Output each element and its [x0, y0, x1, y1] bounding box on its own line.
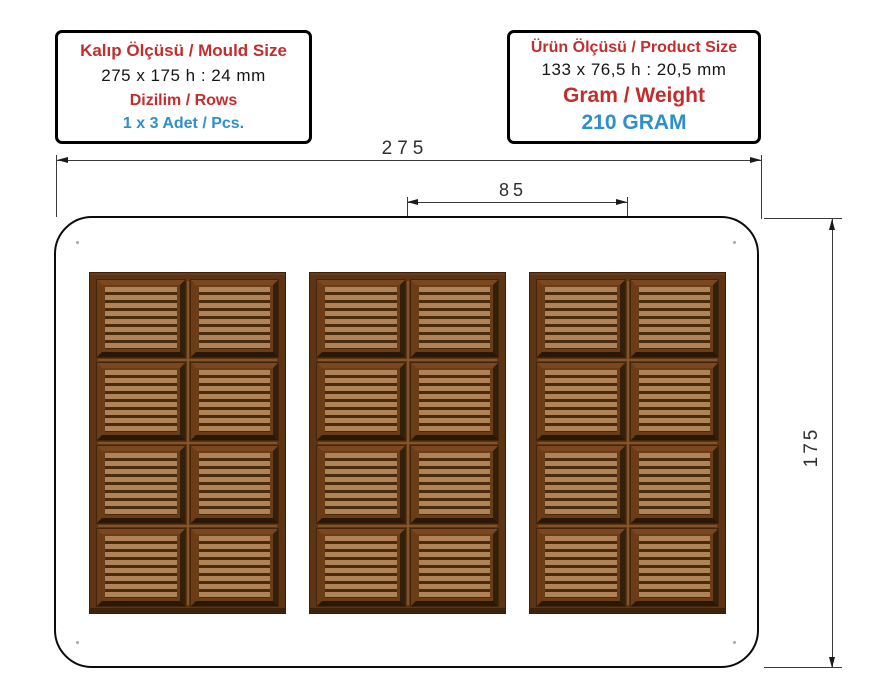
extension-line [764, 667, 842, 668]
product-info-box: Ürün Ölçüsü / Product Size 133 x 76,5 h … [507, 30, 761, 144]
dim-arrow-right-icon [750, 157, 761, 163]
dimension-height-label: 175 [790, 425, 834, 469]
chocolate-segment [631, 446, 719, 523]
rows-label: Dizilim / Rows [58, 92, 309, 110]
chocolate-segment [411, 280, 499, 357]
chocolate-segment [631, 363, 719, 440]
chocolate-segment [317, 529, 405, 606]
weight-label: Gram / Weight [510, 84, 758, 108]
chocolate-segment [317, 280, 405, 357]
extension-line [761, 155, 762, 219]
bar-divider-highlight [98, 359, 277, 361]
dim-arrow-left-icon [407, 199, 418, 205]
chocolate-bar [90, 273, 285, 613]
chocolate-segment [537, 446, 625, 523]
chocolate-segment [411, 446, 499, 523]
bar-divider-highlight [538, 525, 717, 527]
corner-mark [76, 641, 79, 644]
chocolate-segment [97, 363, 185, 440]
drawing-canvas: Kalıp Ölçüsü / Mould Size 275 x 175 h : … [0, 0, 881, 693]
dim-arrow-left-icon [57, 157, 68, 163]
corner-mark [733, 241, 736, 244]
chocolate-segment [411, 363, 499, 440]
chocolate-segment [191, 280, 279, 357]
chocolate-segment [411, 529, 499, 606]
dim-arrow-right-icon [616, 199, 627, 205]
bar-divider-highlight [318, 525, 497, 527]
mould-size-value: 275 x 175 h : 24 mm [58, 66, 309, 86]
rows-value: 1 x 3 Adet / Pcs. [58, 115, 309, 133]
corner-mark [733, 641, 736, 644]
chocolate-segment [537, 280, 625, 357]
chocolate-segment [631, 529, 719, 606]
chocolate-segment [191, 446, 279, 523]
bar-divider-highlight [538, 442, 717, 444]
mould-info-box: Kalıp Ölçüsü / Mould Size 275 x 175 h : … [55, 30, 312, 144]
dimension-height-line [832, 219, 833, 668]
dimension-pitch-label: 85 [472, 180, 554, 201]
chocolate-segment [317, 363, 405, 440]
chocolate-segment [317, 446, 405, 523]
chocolate-segment [97, 529, 185, 606]
chocolate-bar [310, 273, 505, 613]
chocolate-segment [537, 529, 625, 606]
mould-title: Kalıp Ölçüsü / Mould Size [58, 41, 309, 61]
chocolate-segment [191, 529, 279, 606]
dim-arrow-up-icon [829, 219, 835, 230]
weight-value: 210 GRAM [510, 111, 758, 135]
extension-line [764, 218, 842, 219]
extension-line [56, 155, 57, 217]
corner-mark [76, 241, 79, 244]
chocolate-segment [537, 363, 625, 440]
bar-divider-highlight [318, 359, 497, 361]
chocolate-segment [97, 446, 185, 523]
bar-divider-highlight [318, 442, 497, 444]
bar-divider-highlight [98, 442, 277, 444]
product-title: Ürün Ölçüsü / Product Size [510, 39, 758, 57]
dimension-pitch-line [407, 202, 627, 203]
bar-divider-highlight [538, 359, 717, 361]
dimension-width-line [57, 160, 761, 161]
bar-divider-highlight [98, 525, 277, 527]
chocolate-segment [191, 363, 279, 440]
dimension-width-label: 275 [355, 138, 455, 160]
chocolate-segment [97, 280, 185, 357]
chocolate-bar [530, 273, 725, 613]
product-size-value: 133 x 76,5 h : 20,5 mm [510, 60, 758, 80]
chocolate-segment [631, 280, 719, 357]
